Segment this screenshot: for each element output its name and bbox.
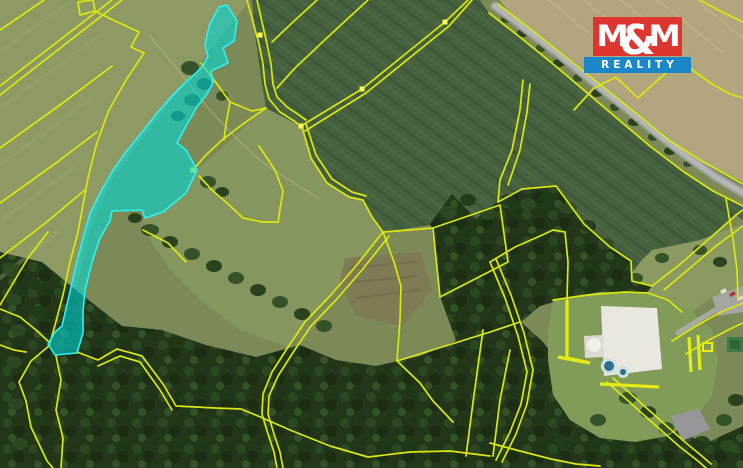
tree-canopy bbox=[12, 438, 28, 450]
tree-canopy bbox=[316, 320, 332, 332]
sports-court-inner bbox=[730, 340, 740, 349]
logo-ampersand: & bbox=[620, 20, 656, 61]
tree-canopy bbox=[460, 194, 476, 206]
boundary-point-marker bbox=[443, 20, 448, 25]
pool-dome-building bbox=[587, 338, 601, 352]
swimming-pool-water bbox=[620, 369, 626, 375]
tree-canopy bbox=[540, 192, 556, 204]
tree-canopy bbox=[720, 440, 736, 452]
mm-reality-logo: M & M REALITY bbox=[584, 17, 691, 73]
tree-canopy bbox=[184, 248, 200, 260]
boundary-point-marker bbox=[360, 87, 365, 92]
tree-canopy bbox=[590, 414, 606, 426]
boundary-point-marker bbox=[258, 33, 263, 38]
parcel-boundary-thick-line bbox=[698, 335, 700, 370]
boundary-point-marker bbox=[299, 124, 304, 129]
swimming-pool-water bbox=[604, 361, 614, 371]
map-screenshot: M & M REALITY bbox=[0, 0, 743, 468]
tree-canopy bbox=[26, 278, 42, 290]
tree-canopy bbox=[658, 422, 674, 434]
tree-canopy bbox=[716, 414, 732, 426]
tree-canopy bbox=[24, 376, 40, 388]
tree-canopy bbox=[439, 206, 457, 218]
tree-canopy bbox=[6, 356, 22, 368]
tree-canopy bbox=[228, 272, 244, 284]
tree-canopy bbox=[10, 324, 26, 336]
tree-canopy bbox=[713, 257, 727, 267]
logo-mm-box: M & M bbox=[593, 17, 682, 56]
tree-canopy bbox=[30, 306, 46, 318]
tree-canopy bbox=[8, 398, 24, 410]
tree-canopy bbox=[128, 213, 142, 223]
tree-canopy bbox=[6, 294, 22, 306]
tree-canopy bbox=[250, 284, 266, 296]
tree-canopy bbox=[640, 406, 656, 418]
parcel-boundary-thick-line bbox=[689, 337, 691, 372]
tree-canopy bbox=[520, 198, 536, 210]
tree-canopy bbox=[655, 253, 669, 263]
tree-canopy bbox=[206, 260, 222, 272]
tree-canopy bbox=[272, 296, 288, 308]
tree-canopy bbox=[551, 434, 569, 446]
tree-canopy bbox=[694, 436, 710, 448]
